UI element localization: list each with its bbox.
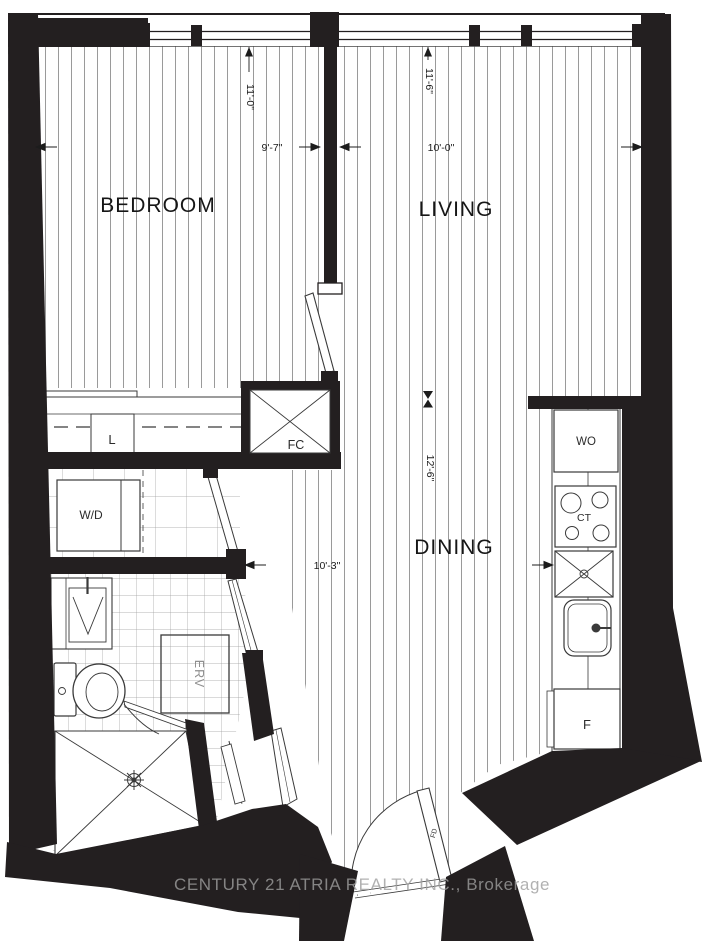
- fan-coil-closet: FC: [250, 390, 330, 453]
- shower-drain: [124, 770, 144, 790]
- dim-text: 10'-3": [314, 560, 341, 572]
- window-mullion: [191, 25, 202, 46]
- fridge-door-line: [547, 691, 554, 747]
- floorplan-page: L ERV: [0, 0, 714, 941]
- cooktop-label: CT: [577, 512, 592, 524]
- bedroom-partition-wall: [324, 46, 337, 284]
- kitchen-top-wall: [528, 396, 642, 409]
- bedroom-label: BEDROOM: [100, 194, 216, 217]
- laundry-closet: W/D: [57, 470, 143, 556]
- window-mullion: [521, 25, 532, 46]
- erv-label: ERV: [192, 660, 206, 688]
- linen-closet-label: L: [108, 432, 115, 447]
- bedroom-wood-floor: [40, 46, 322, 388]
- washer-dryer-label: W/D: [79, 508, 103, 522]
- laundry-bath-wall: [44, 557, 244, 574]
- dining-label: DINING: [414, 536, 494, 559]
- living-label: LIVING: [419, 198, 494, 221]
- brokerage-watermark: CENTURY 21 ATRIA REALTY INC., Brokerage: [174, 875, 550, 894]
- vanity-counter: [51, 578, 112, 649]
- window-mullion: [139, 23, 150, 47]
- fan-coil-label: FC: [288, 438, 305, 452]
- top-left-wall-header: [8, 18, 148, 47]
- hall-post: [226, 549, 246, 579]
- window-column: [310, 12, 339, 47]
- toilet-bowl: [73, 664, 125, 718]
- bedroom-wall-end-cap: [318, 283, 342, 294]
- dim-text: 12'-6": [424, 455, 436, 482]
- dim-text: 9'-7": [262, 142, 283, 154]
- closet-bottom-wall: [30, 452, 341, 469]
- window-mullion: [469, 25, 480, 46]
- kitchen: WO CT F: [547, 408, 620, 753]
- floorplan-svg: L ERV: [0, 0, 714, 941]
- dim-text: 11'-0": [244, 84, 256, 110]
- fridge-label: F: [583, 717, 591, 732]
- dim-text: 10'-0": [428, 142, 455, 154]
- dim-text: 11'-6": [423, 68, 435, 94]
- wall-oven-label: WO: [576, 436, 596, 448]
